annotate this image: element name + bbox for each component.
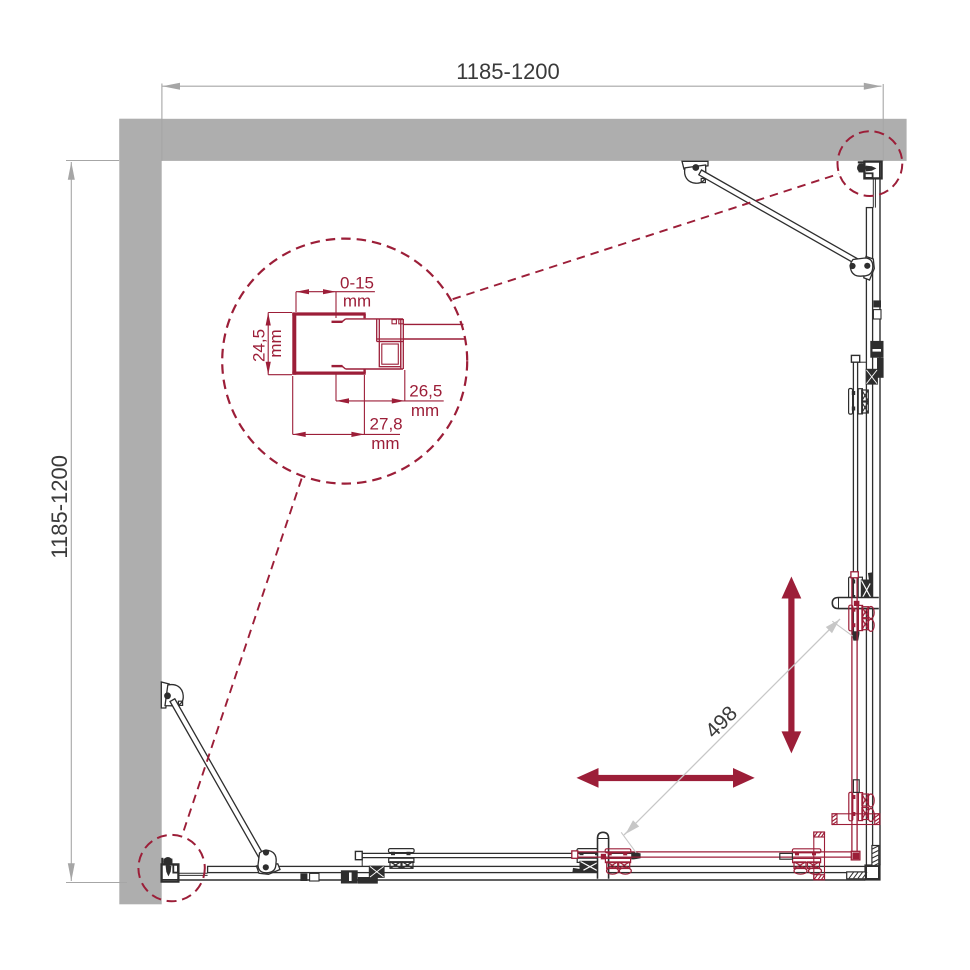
svg-text:mm: mm — [371, 434, 399, 453]
svg-text:mm: mm — [266, 329, 285, 357]
svg-text:0-15: 0-15 — [340, 273, 374, 292]
svg-text:mm: mm — [411, 401, 439, 420]
svg-text:26,5: 26,5 — [409, 382, 442, 401]
svg-text:1185-1200: 1185-1200 — [456, 59, 560, 84]
svg-text:1185-1200: 1185-1200 — [47, 455, 72, 559]
svg-text:mm: mm — [343, 292, 371, 311]
svg-text:27,8: 27,8 — [370, 415, 403, 434]
